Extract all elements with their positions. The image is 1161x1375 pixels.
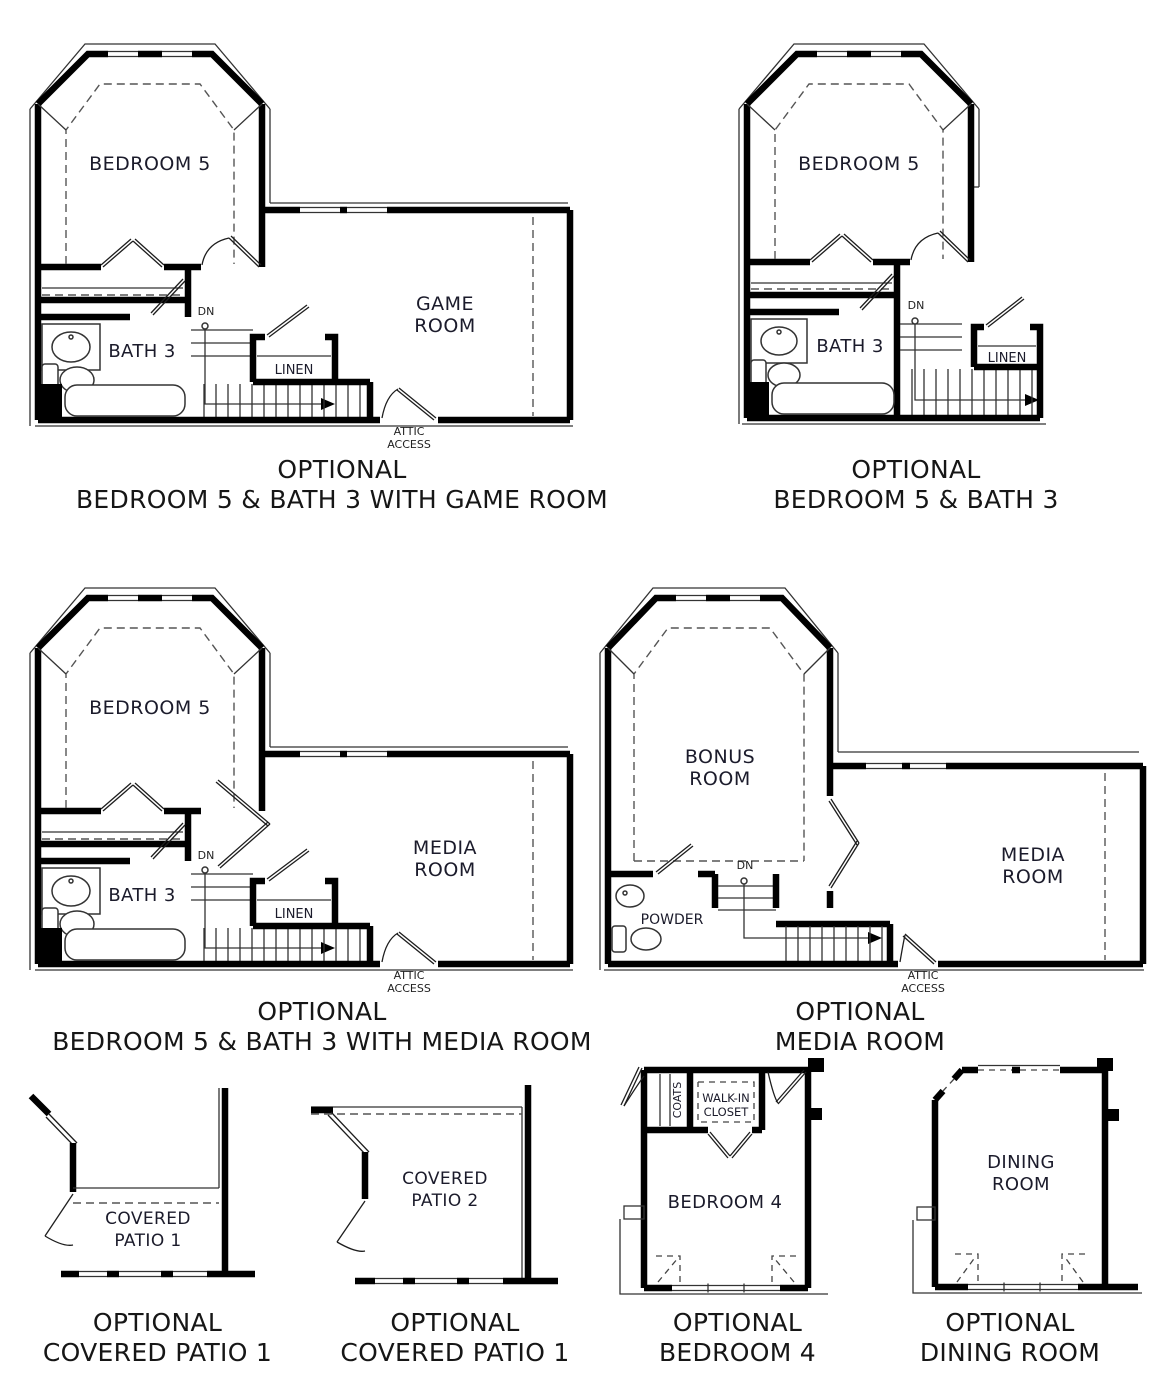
dn-label: DN [198,305,215,318]
wall-block [747,382,769,418]
plan-covered-patio-1: COVERED PATIO 1 [3,1086,265,1298]
plan-bedroom5-bath3: BEDROOM 5 BATH 3 [722,12,1057,457]
plan-caption-patio2: OPTIONAL COVERED PATIO 1 [305,1308,605,1368]
bedroom-double-door [810,234,873,262]
dining-label-1: DINING [987,1152,1055,1173]
dn-label: DN [908,299,925,312]
attic-access-door [382,388,436,420]
bath-sink [751,319,807,363]
dn-label: DN [737,859,754,872]
wall-block [38,384,62,420]
patio-windows [79,1270,207,1279]
tray-ceiling-dashed [608,628,830,861]
linen-label: LINEN [988,351,1027,366]
attic-access-label-2: ACCESS [387,982,431,995]
bedroom-double-door [101,239,164,267]
powder-toilet-tank [612,926,626,952]
powder-toilet-bowl [631,928,661,950]
corner-marks [656,1256,796,1284]
bedroom4-door [768,1070,806,1104]
plan-media-room: BONUS ROOM MEDIA ROOM POWDER [598,556,1158,996]
wall-block [38,928,62,964]
bottom-windows [672,1284,780,1293]
bedroom4-label: BEDROOM 4 [668,1192,783,1213]
plan-caption-media-room-full: OPTIONAL BEDROOM 5 & BATH 3 WITH MEDIA R… [22,997,622,1057]
attic-access-door [382,932,436,964]
bedroom-door [911,231,970,262]
patio-windows [375,1277,503,1286]
plan-caption-bed5-bath3: OPTIONAL BEDROOM 5 & BATH 3 [715,455,1117,515]
patio-door [337,1201,365,1251]
plan-bedroom5-bath3-game-room: BEDROOM 5 BATH 3 [25,12,590,457]
attic-access-label-1: ATTIC [908,969,939,982]
bedroom5-label: BEDROOM 5 [798,153,920,175]
bath3-label: BATH 3 [108,341,175,362]
patio-edge-lines [73,1188,219,1203]
plan-dining-room: DINING ROOM [910,1056,1161,1301]
patio-door [45,1194,73,1245]
dining-label-2: ROOM [992,1174,1050,1195]
bathtub [772,383,894,414]
bonus-room-label-2: ROOM [689,768,751,790]
attic-access-label-1: ATTIC [394,425,425,438]
wic-label-1: WALK-IN [702,1091,750,1105]
bath3-label: BATH 3 [108,885,175,906]
media-room-label-1: MEDIA [1001,844,1065,866]
plan-caption-patio1: OPTIONAL COVERED PATIO 1 [5,1308,310,1368]
closet-shelf [38,267,188,317]
plan-bedroom5-bath3-media-room: BEDROOM 5 BATH 3 [25,556,590,996]
patio2-label-1: COVERED [402,1169,488,1189]
patio1-label-1: COVERED [105,1209,191,1229]
plan-caption-media-room: OPTIONAL MEDIA ROOM [660,997,1060,1057]
bonus-room-label-1: BONUS [685,746,755,768]
bath3-label: BATH 3 [816,336,883,357]
dn-label: DN [198,849,215,862]
linen-label: LINEN [275,363,314,378]
bathtub [65,385,185,416]
bedroom5-label: BEDROOM 5 [89,153,211,175]
game-room-label-1: GAME [416,293,474,315]
porch-outline [620,1206,828,1294]
bottom-windows [968,1283,1078,1292]
patio2-label-2: PATIO 2 [411,1191,478,1211]
attic-access-label-1: ATTIC [394,969,425,982]
powder-sink [616,885,644,907]
bedroom-double-door [101,783,164,811]
bedroom-door [202,236,261,267]
wic-label-2: CLOSET [704,1105,750,1119]
attic-access-label-2: ACCESS [387,438,431,451]
bath-sink [42,868,100,914]
linen-label: LINEN [275,907,314,922]
cased-opening-doors [829,799,859,888]
media-room-walls [830,762,1143,965]
game-room-label-2: ROOM [414,315,476,337]
media-room-label-2: ROOM [1002,866,1064,888]
powder-room [608,844,715,952]
plan-bedroom-4: COATS WALK-IN CLOSET BEDROOM 4 [612,1056,860,1301]
plan-caption-game-room: OPTIONAL BEDROOM 5 & BATH 3 WITH GAME RO… [27,455,657,515]
entry-door [621,1067,644,1106]
floorplan-sheet: BEDROOM 5 BATH 3 [0,0,1161,1375]
corner-marks [955,1254,1085,1284]
plan-caption-bedroom4: OPTIONAL BEDROOM 4 [590,1308,885,1368]
attic-access-label-2: ACCESS [901,982,945,995]
attic-access-door [900,934,936,964]
closet-shelf [38,811,188,861]
coats-label: COATS [671,1082,684,1119]
stairs [718,874,890,964]
media-room-label-2: ROOM [414,859,476,881]
powder-label: POWDER [641,912,704,928]
plan-caption-dining: OPTIONAL DINING ROOM [862,1308,1158,1368]
patio1-label-2: PATIO 1 [114,1231,181,1251]
bath-sink [42,324,100,370]
plan-covered-patio-2: COVERED PATIO 2 [303,1081,565,1298]
bedroom5-label: BEDROOM 5 [89,697,211,719]
bathtub [65,929,185,960]
media-room-label-1: MEDIA [413,837,477,859]
